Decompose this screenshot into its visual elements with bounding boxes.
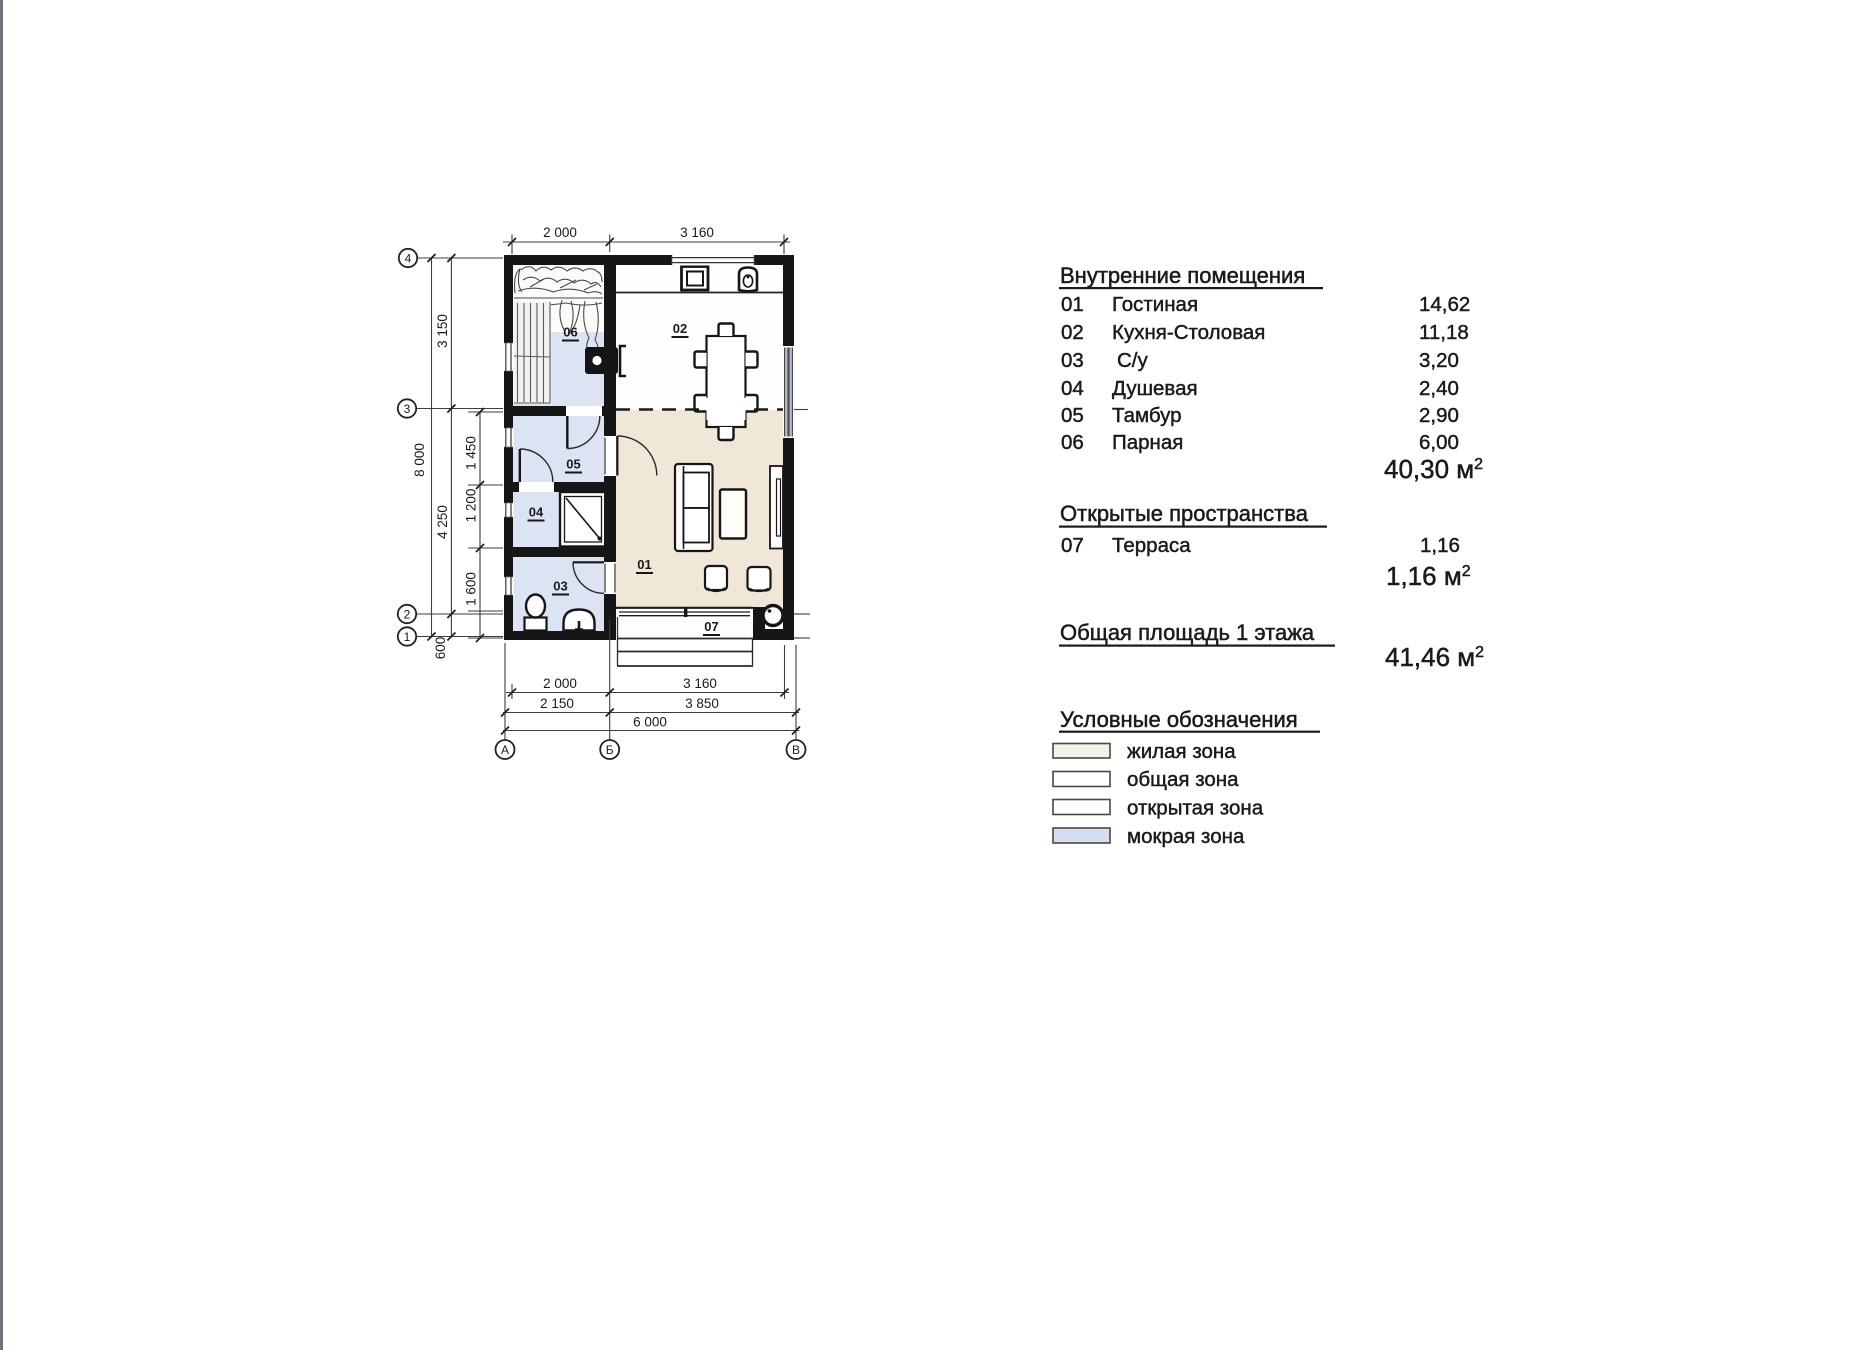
svg-text:Тамбур: Тамбур (1112, 404, 1182, 427)
svg-text:1,16: 1,16 (1420, 534, 1460, 557)
svg-text:01: 01 (1061, 293, 1084, 316)
svg-text:01: 01 (637, 557, 651, 572)
svg-text:03: 03 (1061, 349, 1084, 372)
svg-text:1 450: 1 450 (464, 436, 479, 470)
svg-text:открытая зона: открытая зона (1127, 797, 1264, 820)
svg-text:Парная: Парная (1112, 431, 1183, 454)
svg-text:6,00: 6,00 (1419, 431, 1459, 454)
svg-text:07: 07 (1061, 534, 1084, 557)
svg-text:2: 2 (404, 608, 411, 622)
svg-text:8 000: 8 000 (412, 443, 427, 477)
svg-text:05: 05 (1061, 404, 1084, 427)
svg-text:02: 02 (1061, 321, 1084, 344)
svg-text:07: 07 (704, 619, 718, 634)
svg-text:06: 06 (1061, 431, 1084, 454)
svg-text:04: 04 (529, 505, 544, 520)
svg-text:1,16 м2: 1,16 м2 (1386, 561, 1471, 591)
svg-text:Общая площадь 1 этажа: Общая площадь 1 этажа (1060, 620, 1315, 645)
svg-text:Кухня-Столовая: Кухня-Столовая (1112, 321, 1265, 344)
svg-text:40,30 м2: 40,30 м2 (1384, 454, 1483, 484)
svg-text:Открытые пространства: Открытые пространства (1060, 501, 1309, 526)
svg-text:3 850: 3 850 (685, 696, 719, 711)
svg-text:1: 1 (404, 630, 411, 644)
svg-text:6 000: 6 000 (633, 715, 667, 730)
svg-text:2,40: 2,40 (1419, 377, 1459, 400)
svg-text:3 150: 3 150 (435, 314, 450, 348)
svg-text:В: В (792, 743, 800, 757)
svg-text:А: А (501, 743, 509, 757)
svg-text:1 600: 1 600 (464, 572, 479, 606)
svg-text:С/у: С/у (1117, 349, 1149, 372)
svg-text:02: 02 (673, 321, 687, 336)
svg-text:2 000: 2 000 (543, 676, 577, 691)
svg-text:4 250: 4 250 (435, 505, 450, 539)
svg-text:3,20: 3,20 (1419, 349, 1459, 372)
svg-text:06: 06 (563, 325, 577, 340)
svg-text:Б: Б (606, 743, 614, 757)
svg-text:41,46 м2: 41,46 м2 (1385, 642, 1484, 672)
svg-text:Душевая: Душевая (1112, 377, 1198, 400)
svg-text:14,62: 14,62 (1419, 293, 1470, 316)
svg-text:03: 03 (553, 579, 567, 594)
svg-text:общая зона: общая зона (1127, 768, 1239, 791)
svg-text:жилая зона: жилая зона (1127, 740, 1236, 763)
svg-text:3: 3 (404, 402, 411, 416)
svg-text:3 160: 3 160 (680, 225, 714, 240)
svg-text:Гостиная: Гостиная (1112, 293, 1198, 316)
svg-text:Внутренние помещения: Внутренние помещения (1060, 263, 1305, 288)
svg-text:05: 05 (566, 457, 580, 472)
svg-text:3 160: 3 160 (683, 676, 717, 691)
svg-text:04: 04 (1061, 377, 1084, 400)
svg-text:4: 4 (405, 252, 412, 266)
svg-text:Условные обозначения: Условные обозначения (1060, 707, 1298, 732)
svg-text:11,18: 11,18 (1419, 321, 1469, 344)
svg-text:Терраса: Терраса (1112, 534, 1191, 557)
svg-text:2,90: 2,90 (1419, 404, 1459, 427)
svg-text:2 150: 2 150 (540, 696, 574, 711)
svg-text:600: 600 (433, 637, 448, 660)
svg-text:1 200: 1 200 (464, 489, 479, 523)
svg-text:2 000: 2 000 (543, 225, 577, 240)
svg-text:мокрая зона: мокрая зона (1127, 825, 1245, 848)
